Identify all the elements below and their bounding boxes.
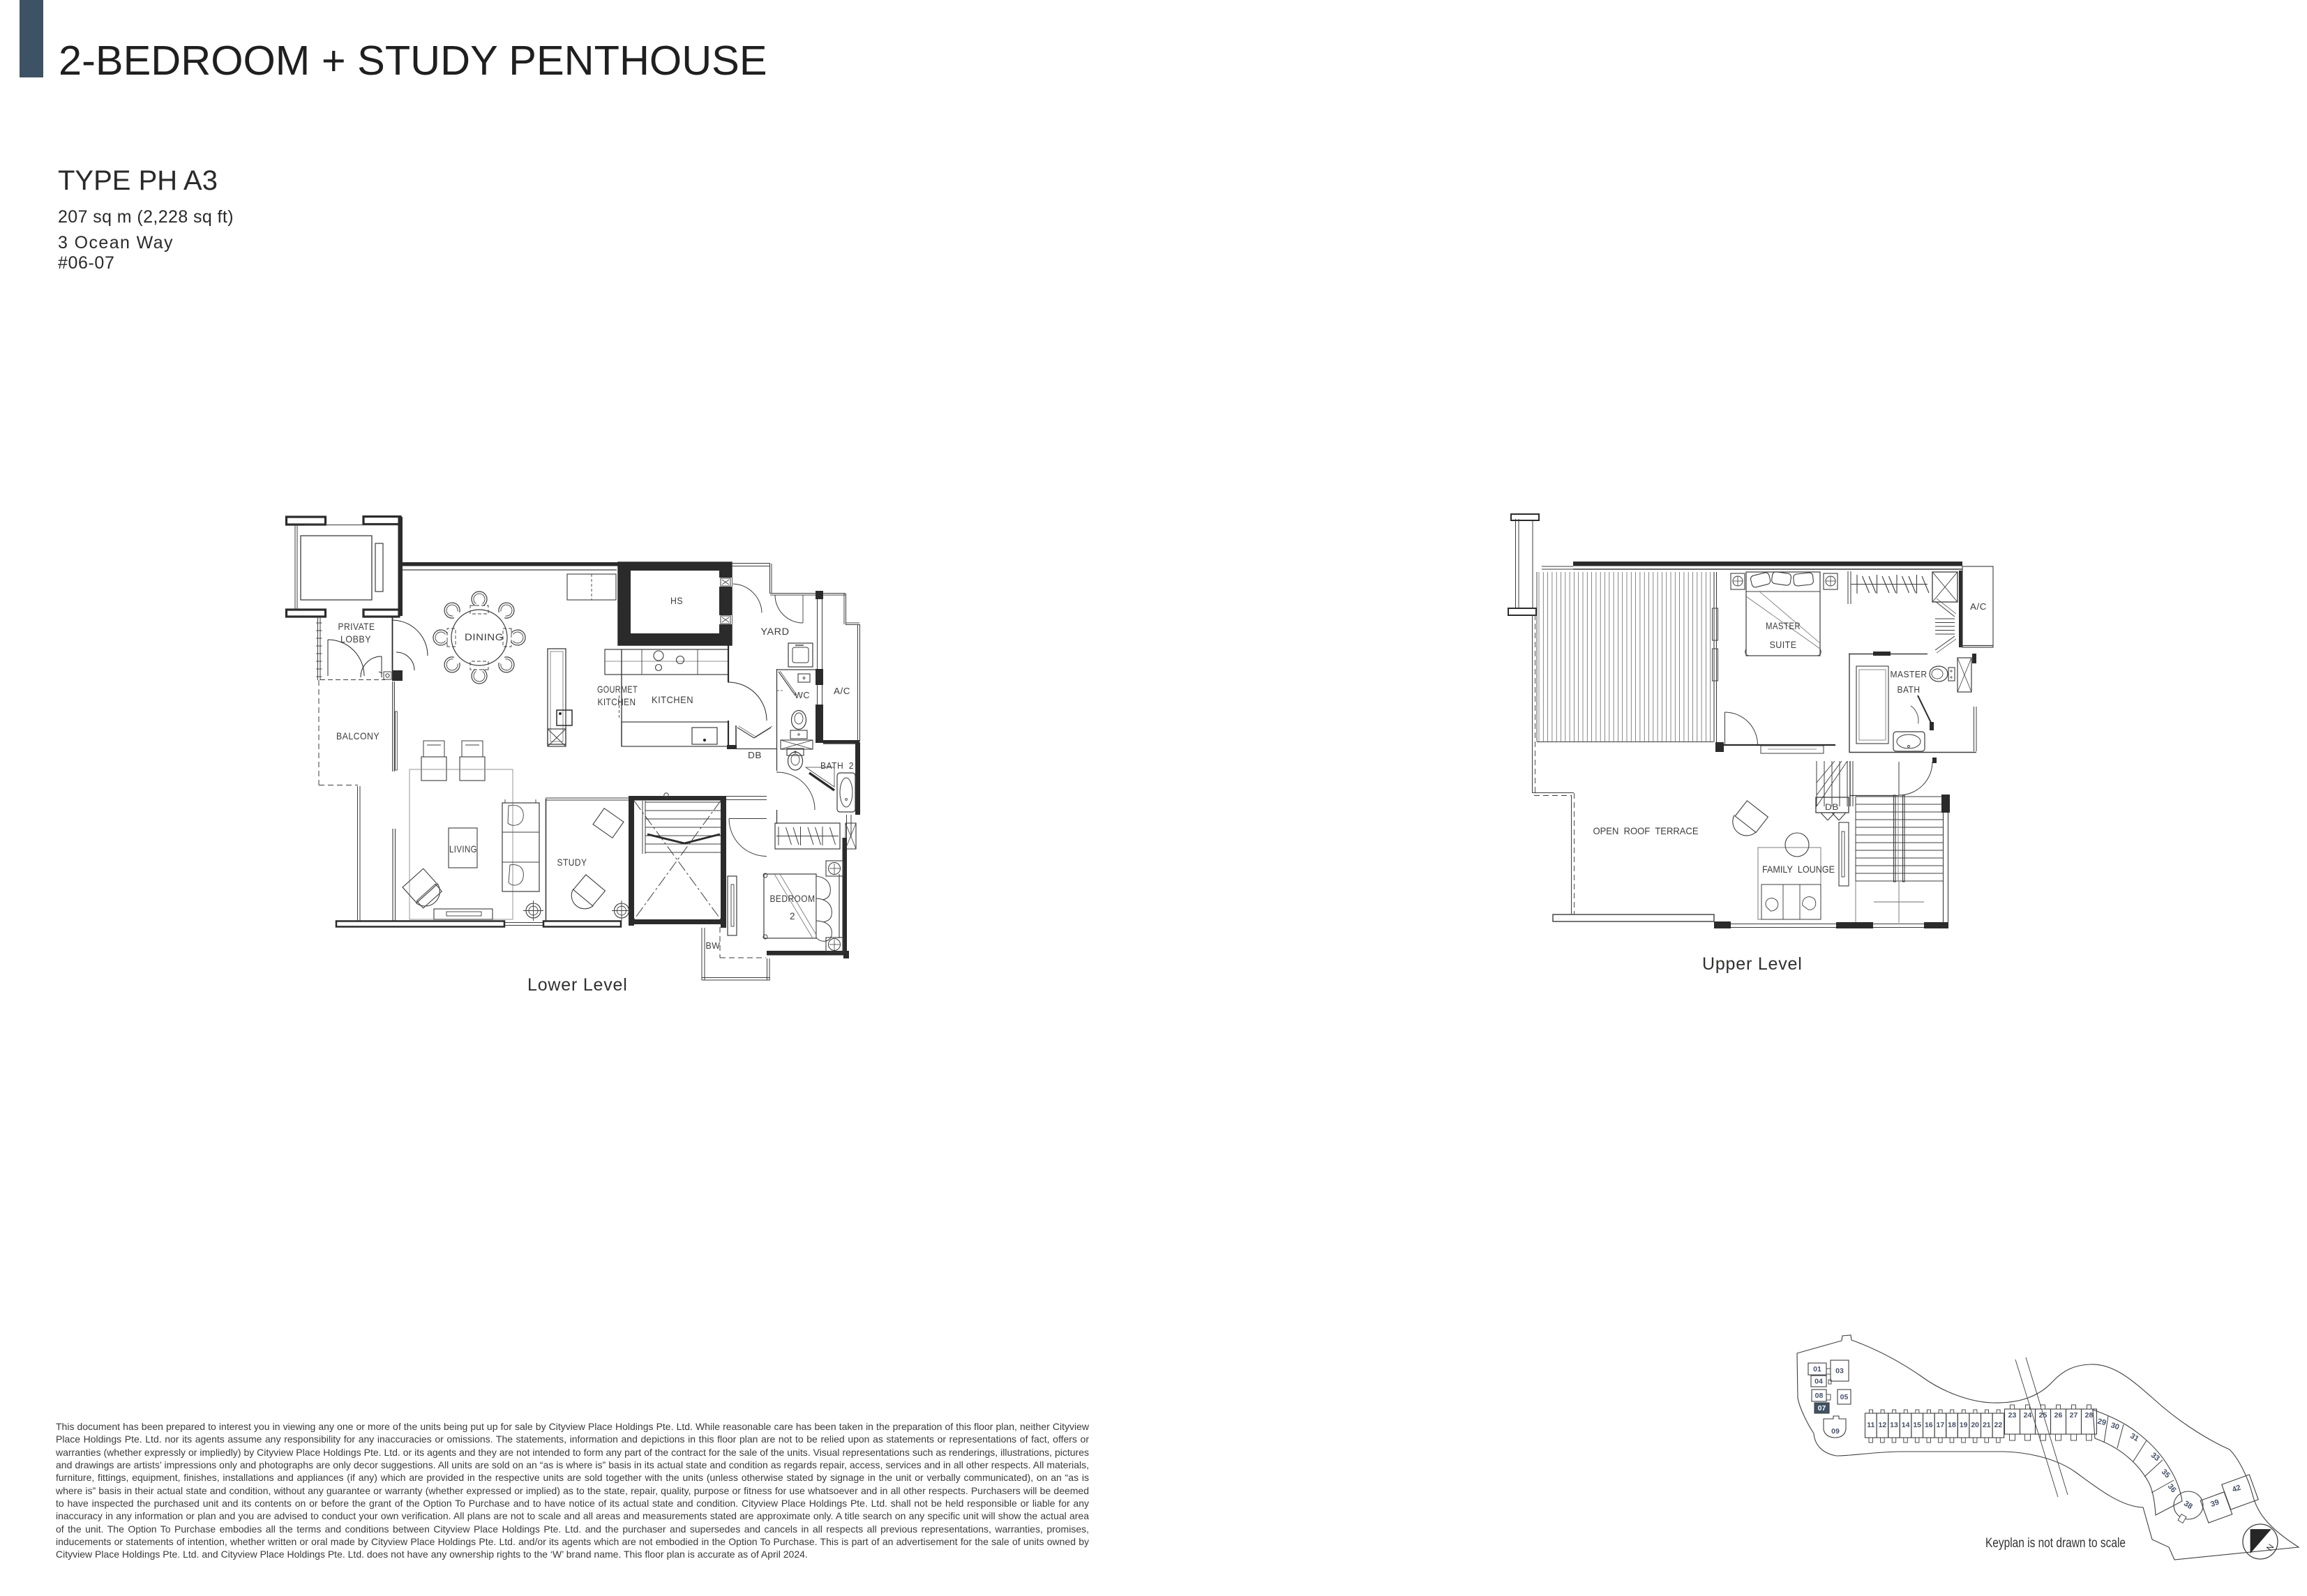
- svg-text:01: 01: [1813, 1365, 1821, 1373]
- svg-text:05: 05: [1840, 1393, 1849, 1401]
- svg-text:29: 29: [2096, 1417, 2107, 1427]
- svg-text:LOBBY: LOBBY: [340, 633, 371, 645]
- svg-text:08: 08: [1815, 1392, 1824, 1400]
- svg-text:KITCHEN: KITCHEN: [598, 696, 636, 707]
- svg-text:27: 27: [2070, 1411, 2078, 1420]
- svg-text:13: 13: [1890, 1421, 1898, 1429]
- svg-text:A/C: A/C: [1970, 601, 1987, 612]
- svg-text:30: 30: [2110, 1421, 2120, 1431]
- svg-text:FAMILY LOUNGE: FAMILY LOUNGE: [1762, 864, 1835, 875]
- svg-text:14: 14: [1902, 1421, 1910, 1429]
- svg-text:15: 15: [1913, 1421, 1921, 1429]
- svg-text:SUITE: SUITE: [1770, 639, 1797, 650]
- svg-text:21: 21: [1983, 1421, 1991, 1429]
- svg-text:26: 26: [2054, 1411, 2063, 1420]
- svg-text:35: 35: [2160, 1468, 2172, 1480]
- svg-text:11: 11: [1867, 1421, 1874, 1429]
- svg-text:36: 36: [2166, 1482, 2178, 1494]
- svg-text:39: 39: [2209, 1498, 2220, 1509]
- svg-text:DB: DB: [748, 750, 762, 760]
- svg-text:MASTER: MASTER: [1766, 620, 1801, 631]
- svg-text:N: N: [2264, 1542, 2276, 1553]
- svg-text:OPEN ROOF TERRACE: OPEN ROOF TERRACE: [1593, 825, 1699, 836]
- svg-text:33: 33: [2149, 1451, 2161, 1463]
- svg-text:2: 2: [790, 911, 795, 921]
- svg-text:38: 38: [2182, 1499, 2194, 1511]
- svg-text:23: 23: [2008, 1411, 2017, 1420]
- svg-text:17: 17: [1937, 1421, 1945, 1429]
- svg-text:KITCHEN: KITCHEN: [652, 694, 693, 705]
- svg-text:BATH: BATH: [1898, 684, 1921, 695]
- svg-text:Keyplan is not drawn to scale: Keyplan is not drawn to scale: [1985, 1536, 2126, 1551]
- svg-text:LIVING: LIVING: [449, 843, 477, 855]
- svg-text:18: 18: [1948, 1421, 1956, 1429]
- svg-text:BATH 2: BATH 2: [820, 760, 854, 771]
- svg-text:28: 28: [2085, 1411, 2094, 1420]
- svg-text:GOURMET: GOURMET: [597, 684, 638, 695]
- svg-text:09: 09: [1831, 1427, 1840, 1436]
- svg-text:YARD: YARD: [761, 626, 790, 637]
- svg-text:MASTER: MASTER: [1891, 669, 1927, 679]
- svg-text:16: 16: [1925, 1421, 1933, 1429]
- svg-text:DINING: DINING: [465, 631, 504, 642]
- svg-text:PRIVATE: PRIVATE: [338, 621, 375, 632]
- svg-text:25: 25: [2039, 1411, 2047, 1420]
- svg-text:A/C: A/C: [834, 686, 850, 696]
- svg-text:03: 03: [1835, 1367, 1844, 1376]
- svg-text:07: 07: [1818, 1404, 1826, 1413]
- svg-text:24: 24: [2024, 1411, 2032, 1420]
- svg-text:20: 20: [1971, 1421, 1979, 1429]
- svg-text:HS: HS: [670, 595, 683, 606]
- svg-text:STUDY: STUDY: [557, 857, 587, 868]
- svg-text:BEDROOM: BEDROOM: [770, 894, 816, 904]
- svg-text:BALCONY: BALCONY: [336, 730, 380, 741]
- svg-text:BW: BW: [706, 940, 721, 951]
- svg-text:19: 19: [1960, 1421, 1968, 1429]
- svg-text:22: 22: [1994, 1421, 2003, 1429]
- svg-text:WC: WC: [795, 690, 810, 700]
- svg-text:12: 12: [1879, 1421, 1887, 1429]
- svg-text:04: 04: [1814, 1378, 1823, 1386]
- svg-text:42: 42: [2231, 1484, 2242, 1494]
